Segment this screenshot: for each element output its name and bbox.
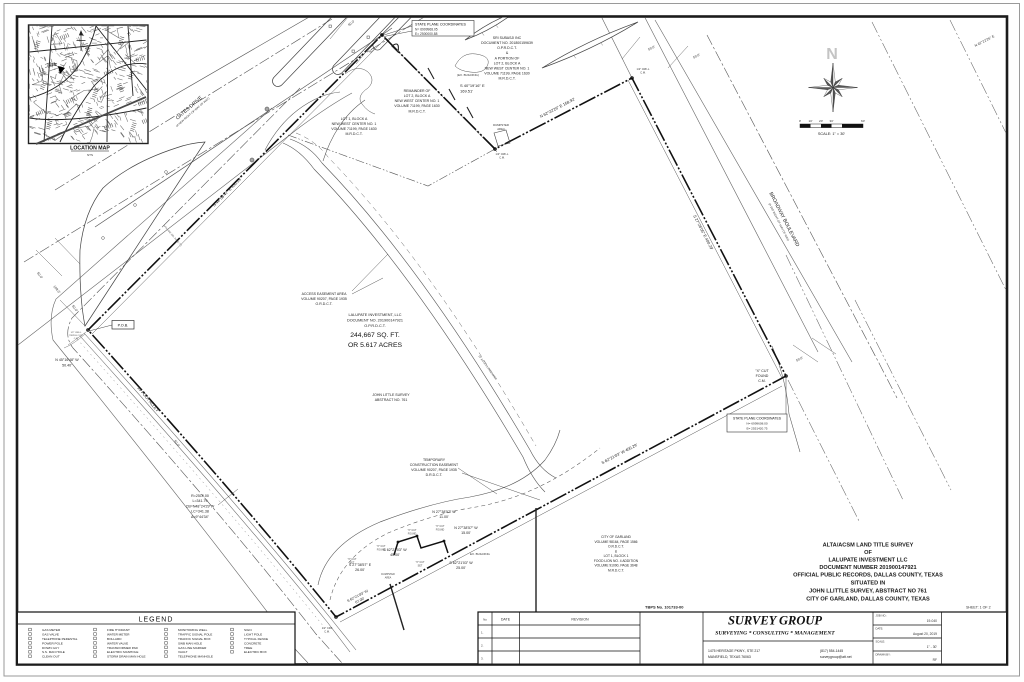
svg-text:TRAFFIC SIGNAL BOX: TRAFFIC SIGNAL BOX xyxy=(178,637,211,641)
svg-text:SITUATED IN: SITUATED IN xyxy=(851,581,886,587)
svg-text:LEGEND: LEGEND xyxy=(139,617,174,624)
svg-text:FIRE HYDRANT: FIRE HYDRANT xyxy=(107,628,130,632)
svg-text:LALUPATE INVESTMENT LLC: LALUPATE INVESTMENT LLC xyxy=(828,558,907,564)
svg-text:(EX. BUILDING): (EX. BUILDING) xyxy=(457,73,479,77)
svg-text:3.: 3. xyxy=(481,657,484,661)
svg-text:E= 2500000.88: E= 2500000.88 xyxy=(415,32,438,36)
svg-text:S.S. MAN HOLE: S.S. MAN HOLE xyxy=(42,650,65,654)
svg-text:ABSTRACT NO. 761: ABSTRACT NO. 761 xyxy=(375,398,408,402)
svg-text:LC=341.38: LC=341.38 xyxy=(191,510,209,514)
svg-text:L=341.79: L=341.79 xyxy=(192,499,207,503)
svg-text:D.R.D.C.T.: D.R.D.C.T. xyxy=(426,473,443,477)
svg-text:M.R.D.C.T.: M.R.D.C.T. xyxy=(345,132,362,136)
svg-text:S 40°19'16" E: S 40°19'16" E xyxy=(460,83,485,88)
svg-text:ELECTRIC MANHOLE: ELECTRIC MANHOLE xyxy=(107,650,138,654)
svg-text:M.R.D.C.T.: M.R.D.C.T. xyxy=(608,569,624,573)
svg-text:NTS: NTS xyxy=(87,153,93,157)
svg-text:OR 5.617 ACRES: OR 5.617 ACRES xyxy=(348,342,402,349)
svg-text:SITE: SITE xyxy=(47,62,57,67)
svg-text:TYPICAL FENCE: TYPICAL FENCE xyxy=(244,637,268,641)
svg-text:19-040: 19-040 xyxy=(927,619,937,623)
svg-text:VOLUME 90207, PAGE 1935: VOLUME 90207, PAGE 1935 xyxy=(411,468,457,472)
svg-text:1.: 1. xyxy=(481,631,484,635)
svg-text:TRAFFIC SIGNAL POLE: TRAFFIC SIGNAL POLE xyxy=(178,633,212,637)
svg-text:ELECTRIC BOX: ELECTRIC BOX xyxy=(244,650,267,654)
svg-text:11.00': 11.00' xyxy=(439,515,449,519)
svg-text:DATE: DATE xyxy=(501,618,511,622)
svg-text:JOHN LLITTLE SURVEY, ABSTRACT: JOHN LLITTLE SURVEY, ABSTRACT NO 761 xyxy=(809,589,927,595)
svg-text:DATE:: DATE: xyxy=(876,627,884,631)
svg-text:TELEPHONE PEDESTAL: TELEPHONE PEDESTAL xyxy=(42,637,78,641)
svg-text:TRANSFORMER PAD: TRANSFORMER PAD xyxy=(107,646,139,650)
svg-text:C.M.: C.M. xyxy=(324,630,330,634)
svg-text:STATE PLANE COORDINATES: STATE PLANE COORDINATES xyxy=(415,23,467,27)
svg-text:30': 30' xyxy=(830,119,834,123)
svg-text:AREA: AREA xyxy=(385,577,392,580)
svg-text:ACCESS EASEMENT AREA: ACCESS EASEMENT AREA xyxy=(302,292,348,296)
svg-text:N: N xyxy=(826,46,838,63)
svg-text:LIGHT POLE: LIGHT POLE xyxy=(244,633,262,637)
svg-text:SCALE:: SCALE: xyxy=(876,640,886,644)
svg-text:N 45°16'48" W: N 45°16'48" W xyxy=(55,358,79,362)
svg-text:26.00': 26.00' xyxy=(355,568,365,572)
svg-text:VOLUME 71199, PAGE 1630: VOLUME 71199, PAGE 1630 xyxy=(394,104,439,108)
svg-text:C.M.: C.M. xyxy=(640,71,646,75)
svg-text:SURVEYING * CONSULTING * MANAG: SURVEYING * CONSULTING * MANAGEMENT xyxy=(715,630,835,637)
svg-text:VAULT: VAULT xyxy=(178,650,188,654)
svg-text:C.M.: C.M. xyxy=(499,156,505,160)
svg-text:REMAINDER OF: REMAINDER OF xyxy=(404,89,431,93)
svg-text:S 62°21'03" W: S 62°21'03" W xyxy=(383,548,407,552)
svg-text:LOT 1, BLOCK 1: LOT 1, BLOCK 1 xyxy=(604,554,629,558)
svg-text:OF: OF xyxy=(864,550,872,556)
svg-text:O.P.R.D.C.T.: O.P.R.D.C.T. xyxy=(364,324,385,328)
svg-text:CONSTRUCTION EASEMENT: CONSTRUCTION EASEMENT xyxy=(410,463,459,467)
svg-text:A PORTION OF: A PORTION OF xyxy=(495,56,520,60)
svg-text:1/2" CRF-L: 1/2" CRF-L xyxy=(637,67,650,71)
svg-text:N 27°38'57" W: N 27°38'57" W xyxy=(432,510,456,514)
svg-text:SCALE: 1" = 30': SCALE: 1" = 30' xyxy=(818,132,846,136)
svg-text:MONITORING WELL: MONITORING WELL xyxy=(178,628,208,632)
svg-text:VOLUME 71199, PAGE 1630: VOLUME 71199, PAGE 1630 xyxy=(331,127,376,131)
svg-text:Δ=9°44'34": Δ=9°44'34" xyxy=(191,515,210,519)
svg-text:REVISION: REVISION xyxy=(571,618,589,622)
svg-text:M.R.D.C.T.: M.R.D.C.T. xyxy=(408,109,425,113)
svg-text:SWB MAN HOLE: SWB MAN HOLE xyxy=(178,641,202,645)
svg-text:JOHN LITTLE SURVEY: JOHN LITTLE SURVEY xyxy=(372,393,410,397)
svg-text:O.R.D.C.T.: O.R.D.C.T. xyxy=(608,545,624,549)
svg-text:SRI SUBASJI INC: SRI SUBASJI INC xyxy=(493,36,522,40)
svg-text:FOUND: FOUND xyxy=(408,533,417,536)
svg-text:GAS VALVE: GAS VALVE xyxy=(42,633,59,637)
svg-text:DOCUMENT NO. 201800159639: DOCUMENT NO. 201800159639 xyxy=(481,41,533,45)
svg-text:SET: SET xyxy=(418,565,423,568)
svg-text:August 20, 2019: August 20, 2019 xyxy=(913,632,937,636)
svg-text:GAS METER: GAS METER xyxy=(42,628,61,632)
svg-text:VOLUME 91090, PAGE 3648: VOLUME 91090, PAGE 3648 xyxy=(594,564,637,568)
svg-text:WATER VALVE: WATER VALVE xyxy=(107,641,128,645)
svg-text:1" - 30': 1" - 30' xyxy=(927,645,938,649)
svg-text:BOLLARD: BOLLARD xyxy=(107,637,122,641)
svg-text:P.O.B.: P.O.B. xyxy=(118,324,129,328)
svg-text:DOCUMENT NUMBER 201900147921: DOCUMENT NUMBER 201900147921 xyxy=(819,565,916,571)
svg-text:GAS LINE MARKER: GAS LINE MARKER xyxy=(178,646,207,650)
svg-text:FOOD LION NO. 4 ADDITION: FOOD LION NO. 4 ADDITION xyxy=(594,559,639,563)
svg-text:SHEET: 1 OF 2: SHEET: 1 OF 2 xyxy=(966,606,991,610)
svg-text:N= 6999608.00: N= 6999608.00 xyxy=(746,422,768,426)
svg-text:DOCUMENT NO. 201900147921: DOCUMENT NO. 201900147921 xyxy=(347,319,403,323)
svg-text:1/2" CRF-L: 1/2" CRF-L xyxy=(71,332,83,334)
svg-text:STATE PLANE COORDINATES: STATE PLANE COORDINATES xyxy=(733,417,782,421)
svg-text:"X" CUT: "X" CUT xyxy=(755,369,769,373)
svg-text:LOT 1, BLOCK A: LOT 1, BLOCK A xyxy=(341,117,368,121)
svg-text:N 27°38'57" W: N 27°38'57" W xyxy=(454,526,478,530)
svg-text:FOUND: FOUND xyxy=(436,529,445,532)
svg-text:TELEPHONE MANHOLE: TELEPHONE MANHOLE xyxy=(178,655,213,659)
svg-text:CITY OF GARLAND, DALLAS COUNTY: CITY OF GARLAND, DALLAS COUNTY, TEXAS xyxy=(806,597,930,603)
svg-text:45.00': 45.00' xyxy=(390,553,400,557)
svg-text:244,667 SQ. FT.: 244,667 SQ. FT. xyxy=(350,332,400,339)
svg-text:(817) 554-1445: (817) 554-1445 xyxy=(820,649,843,653)
svg-text:SET: SET xyxy=(350,562,355,565)
svg-text:LOT 2, BLOCK A: LOT 2, BLOCK A xyxy=(494,61,521,65)
svg-text:CONCRETE: CONCRETE xyxy=(244,641,261,645)
svg-text:2.: 2. xyxy=(481,644,484,648)
svg-text:S 62°21'03" W: S 62°21'03" W xyxy=(449,561,473,565)
svg-text:TBPS No. 101733-00: TBPS No. 101733-00 xyxy=(645,605,684,610)
svg-text:CLEAN OUT: CLEAN OUT xyxy=(42,655,60,659)
svg-text:NEW WEST CENTER NO. 1: NEW WEST CENTER NO. 1 xyxy=(332,122,377,126)
svg-text:WATER METER: WATER METER xyxy=(107,633,130,637)
svg-text:FOUND: FOUND xyxy=(756,374,769,378)
svg-text:C.M.: C.M. xyxy=(758,379,766,383)
svg-text:VOLUME 71199, PAGE 1630: VOLUME 71199, PAGE 1630 xyxy=(484,72,529,76)
svg-text:SURVEY GROUP: SURVEY GROUP xyxy=(728,614,822,628)
svg-text:TEMPORARY: TEMPORARY xyxy=(423,458,446,462)
svg-text:1475 HERITAGE PKWY., STE 217: 1475 HERITAGE PKWY., STE 217 xyxy=(708,649,760,653)
svg-text:MANSFIELD, TEXAS 76063: MANSFIELD, TEXAS 76063 xyxy=(708,655,751,659)
svg-text:E= 2551420.75: E= 2551420.75 xyxy=(746,427,767,431)
svg-text:1/2" CRF: 1/2" CRF xyxy=(322,626,333,630)
svg-text:SIGN: SIGN xyxy=(244,628,252,632)
svg-text:LALUPATE INVESTMENT, LLC: LALUPATE INVESTMENT, LLC xyxy=(348,313,401,317)
svg-text:DRAWN BY:: DRAWN BY: xyxy=(876,653,891,657)
svg-text:OFFICIAL PUBLIC RECORDS, DALLA: OFFICIAL PUBLIC RECORDS, DALLAS COUNTY, … xyxy=(793,573,943,579)
svg-text:CITY OF GARLAND: CITY OF GARLAND xyxy=(601,535,631,539)
svg-text:169.51': 169.51' xyxy=(460,89,473,94)
svg-text:M.R.D.C.T.: M.R.D.C.T. xyxy=(498,77,515,81)
svg-text:surveygroup@att.net: surveygroup@att.net xyxy=(820,655,852,659)
svg-text:ALTA/ACSM LAND TITLE SURVEY: ALTA/ACSM LAND TITLE SURVEY xyxy=(823,543,914,549)
svg-text:VOLUME 90207, PAGE 1935: VOLUME 90207, PAGE 1935 xyxy=(301,297,347,301)
svg-text:50.40': 50.40' xyxy=(62,364,72,368)
svg-text:RF: RF xyxy=(933,658,937,662)
svg-text:FOUND: FOUND xyxy=(377,549,386,552)
svg-text:EX. BUILDING: EX. BUILDING xyxy=(470,552,491,556)
svg-text:No: No xyxy=(483,618,487,622)
svg-text:O.P.R.D.C.T.: O.P.R.D.C.T. xyxy=(497,46,517,50)
svg-text:STORM DRAIN MAN HOLE: STORM DRAIN MAN HOLE xyxy=(107,655,146,659)
svg-text:CB=N48°24'29"W: CB=N48°24'29"W xyxy=(186,504,215,508)
svg-text:R=2510.00: R=2510.00 xyxy=(191,494,209,498)
svg-text:1/2" CRF-L: 1/2" CRF-L xyxy=(496,152,509,156)
svg-text:JOB NO.:: JOB NO.: xyxy=(876,614,888,618)
svg-text:15.00': 15.00' xyxy=(461,531,471,535)
svg-text:DOWN GUY: DOWN GUY xyxy=(42,646,59,650)
svg-text:LOT 2, BLOCK A: LOT 2, BLOCK A xyxy=(404,94,431,98)
svg-text:10': 10' xyxy=(809,119,813,123)
svg-text:NEW WEST CENTER NO. 1: NEW WEST CENTER NO. 1 xyxy=(395,99,440,103)
svg-text:25.00': 25.00' xyxy=(456,566,466,570)
svg-text:NEW WEST CENTER NO. 1: NEW WEST CENTER NO. 1 xyxy=(485,67,530,71)
svg-text:N= 6999968.05: N= 6999968.05 xyxy=(415,28,438,32)
svg-text:O.R.D.C.T.: O.R.D.C.T. xyxy=(316,302,333,306)
svg-text:20': 20' xyxy=(819,119,823,123)
svg-text:POWER POLE: POWER POLE xyxy=(42,641,63,645)
svg-text:LOCATION MAP: LOCATION MAP xyxy=(70,146,110,152)
svg-text:TREE: TREE xyxy=(244,646,252,650)
svg-text:60': 60' xyxy=(861,119,865,123)
svg-text:VOLUME 98164, PAGE 1566: VOLUME 98164, PAGE 1566 xyxy=(594,540,637,544)
